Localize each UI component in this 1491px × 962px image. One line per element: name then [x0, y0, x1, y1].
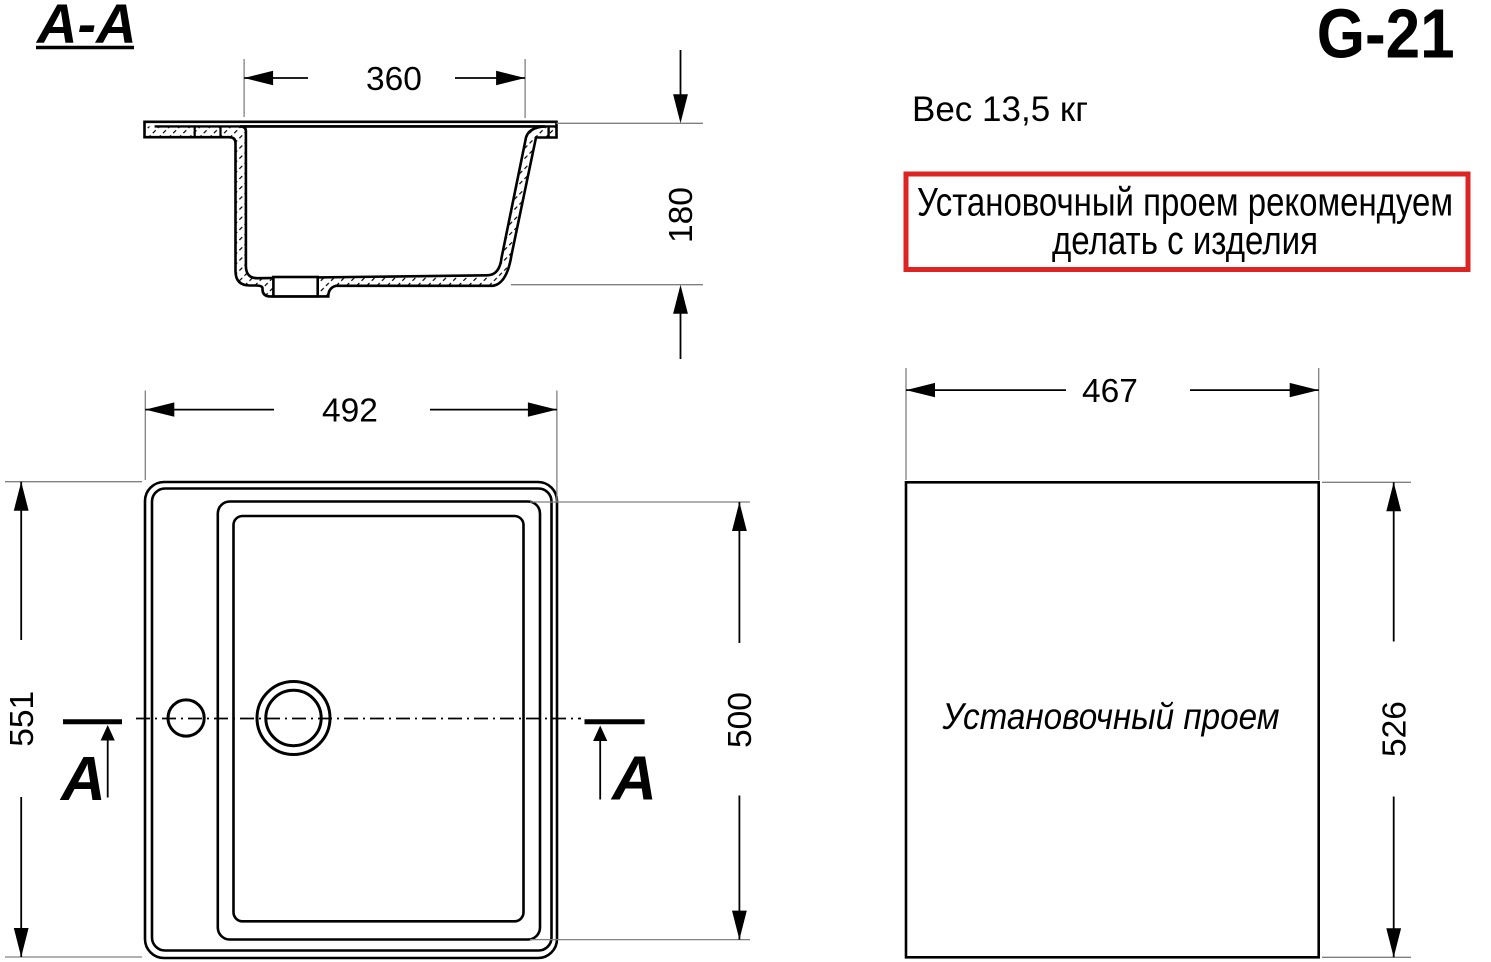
svg-text:500: 500 [722, 692, 759, 748]
svg-text:A: A [610, 745, 657, 814]
svg-text:180: 180 [663, 187, 700, 243]
svg-text:526: 526 [1377, 701, 1414, 757]
svg-text:A: A [59, 745, 106, 814]
svg-text:360: 360 [366, 61, 422, 98]
svg-text:Установочный проем рекомендуем: Установочный проем рекомендуем [917, 181, 1453, 225]
svg-text:Вес 13,5 кг: Вес 13,5 кг [912, 90, 1088, 129]
svg-text:Установочный проем: Установочный проем [942, 696, 1280, 737]
svg-text:467: 467 [1082, 373, 1138, 410]
svg-text:492: 492 [322, 393, 378, 430]
svg-text:551: 551 [4, 691, 41, 747]
svg-text:делать с изделия: делать с изделия [1052, 219, 1318, 263]
svg-text:G-21: G-21 [1317, 0, 1455, 73]
